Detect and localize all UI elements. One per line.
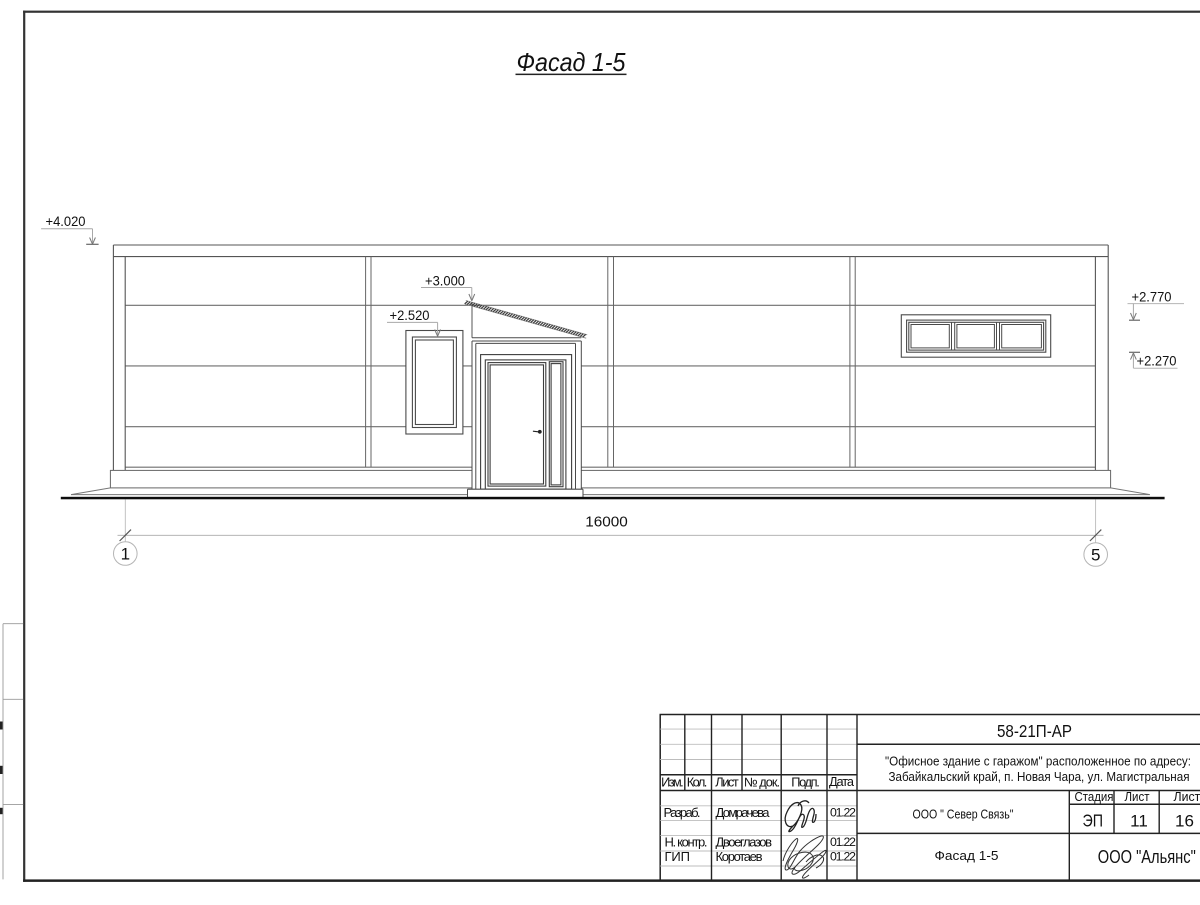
svg-text:"Офисное здание с гаражом" рас: "Офисное здание с гаражом" расположенное… (885, 754, 1191, 769)
svg-text:01.22: 01.22 (830, 849, 856, 863)
svg-text:Лист: Лист (715, 775, 739, 790)
svg-text:Кол.: Кол. (687, 775, 708, 790)
svg-text:Забайкальский край, п. Новая Ч: Забайкальский край, п. Новая Чара, ул. М… (889, 769, 1190, 784)
svg-text:Н. контр.: Н. контр. (665, 835, 708, 850)
svg-text:Подп.: Подп. (791, 775, 820, 790)
svg-text:ЭП: ЭП (1083, 811, 1104, 831)
svg-text:Разраб.: Разраб. (664, 805, 701, 820)
svg-text:ООО "Альянс": ООО "Альянс" (1098, 846, 1196, 867)
svg-text:№ док.: № док. (744, 775, 780, 790)
svg-text:+4.020: +4.020 (46, 214, 86, 229)
svg-text:58-21П-АР: 58-21П-АР (997, 721, 1072, 741)
svg-text:11: 11 (1130, 812, 1148, 831)
svg-text:Фасад 1-5: Фасад 1-5 (935, 848, 999, 863)
svg-text:+2.270: +2.270 (1137, 353, 1177, 368)
svg-text:Листов: Листов (1174, 789, 1200, 804)
svg-text:16000: 16000 (585, 514, 628, 530)
svg-text:Лист: Лист (1125, 789, 1150, 804)
svg-text:Стадия: Стадия (1075, 789, 1114, 804)
svg-text:ООО " Север Связь": ООО " Север Связь" (913, 807, 1014, 822)
svg-text:Коротаев: Коротаев (716, 849, 763, 864)
svg-text:5: 5 (1091, 546, 1100, 565)
svg-text:01.22: 01.22 (830, 835, 856, 849)
svg-text:Двоеглазов: Двоеглазов (716, 835, 773, 850)
svg-text:+2.770: +2.770 (1132, 289, 1172, 304)
svg-text:Дата: Дата (829, 774, 855, 789)
svg-text:Домрачева: Домрачева (716, 805, 771, 820)
svg-text:+2.520: +2.520 (390, 308, 430, 323)
svg-text:01.22: 01.22 (830, 806, 856, 820)
svg-text:1: 1 (121, 545, 130, 564)
svg-text:Фасад 1-5: Фасад 1-5 (517, 47, 626, 77)
svg-text:16: 16 (1175, 812, 1194, 831)
svg-text:+3.000: +3.000 (425, 273, 465, 288)
svg-text:ГИП: ГИП (665, 849, 691, 864)
svg-text:Изм.: Изм. (661, 775, 684, 790)
